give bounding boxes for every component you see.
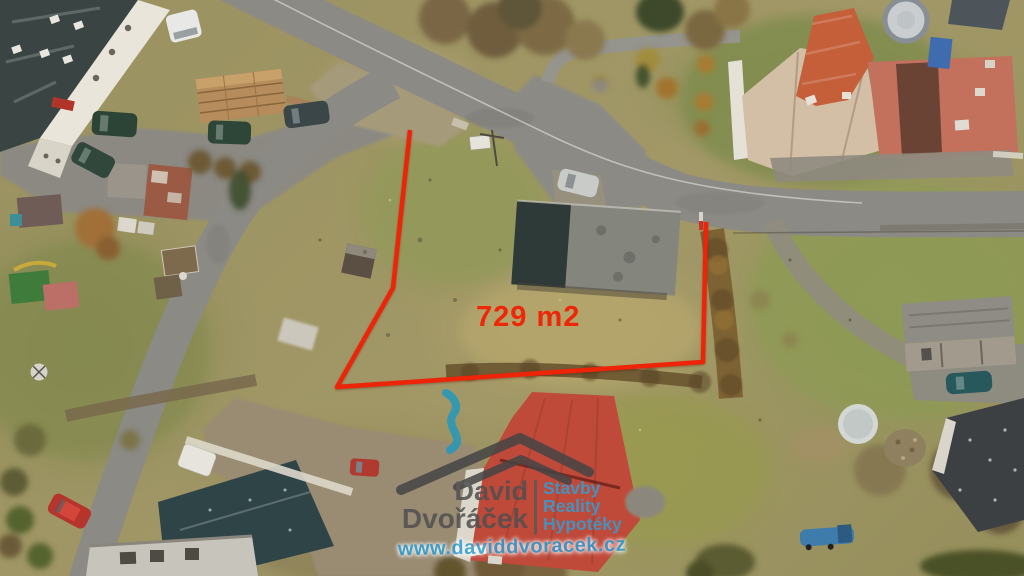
- watermark-name: David Dvořáček: [340, 478, 528, 534]
- watermark-service-2: Reality: [543, 498, 622, 516]
- realtor-watermark: David Dvořáček Stavby Reality Hypotéky w…: [0, 0, 1024, 576]
- watermark-service-3: Hypotéky: [543, 516, 622, 534]
- watermark-services: Stavby Reality Hypotéky: [543, 480, 622, 533]
- chimney-smoke-icon: [446, 393, 457, 450]
- watermark-name-line1: David: [340, 478, 528, 504]
- watermark-name-line2: Dvořáček: [340, 504, 528, 534]
- watermark-divider: [534, 480, 537, 535]
- watermark-website: www.daviddvoracek.cz: [382, 533, 642, 561]
- aerial-photo-stage: 729 m2 David Dvořáček Stavby Reality Hyp…: [0, 0, 1024, 576]
